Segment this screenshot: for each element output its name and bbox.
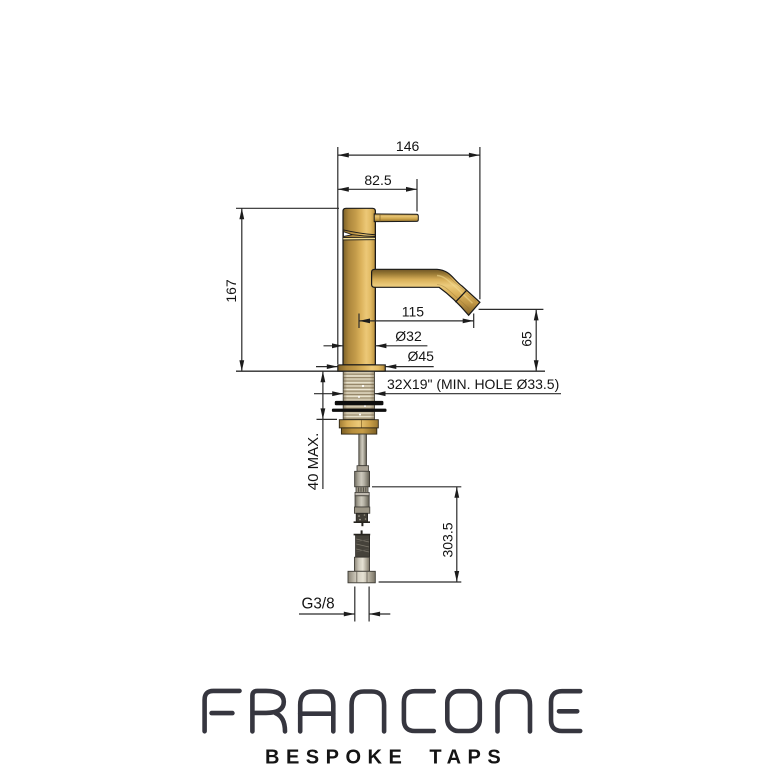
svg-text:Ø45: Ø45 bbox=[407, 348, 434, 364]
svg-text:65: 65 bbox=[519, 331, 535, 347]
svg-text:167: 167 bbox=[223, 279, 239, 303]
svg-text:40 MAX.: 40 MAX. bbox=[305, 433, 322, 491]
svg-text:BESPOKE TAPS: BESPOKE TAPS bbox=[265, 746, 507, 768]
svg-text:Ø32: Ø32 bbox=[395, 328, 422, 344]
svg-text:G3/8: G3/8 bbox=[302, 596, 335, 613]
svg-text:32X19" (MIN. HOLE Ø33.5): 32X19" (MIN. HOLE Ø33.5) bbox=[387, 376, 559, 392]
svg-text:115: 115 bbox=[402, 304, 425, 320]
svg-text:82.5: 82.5 bbox=[364, 172, 391, 188]
svg-text:303.5: 303.5 bbox=[439, 522, 455, 557]
svg-text:146: 146 bbox=[396, 138, 420, 154]
